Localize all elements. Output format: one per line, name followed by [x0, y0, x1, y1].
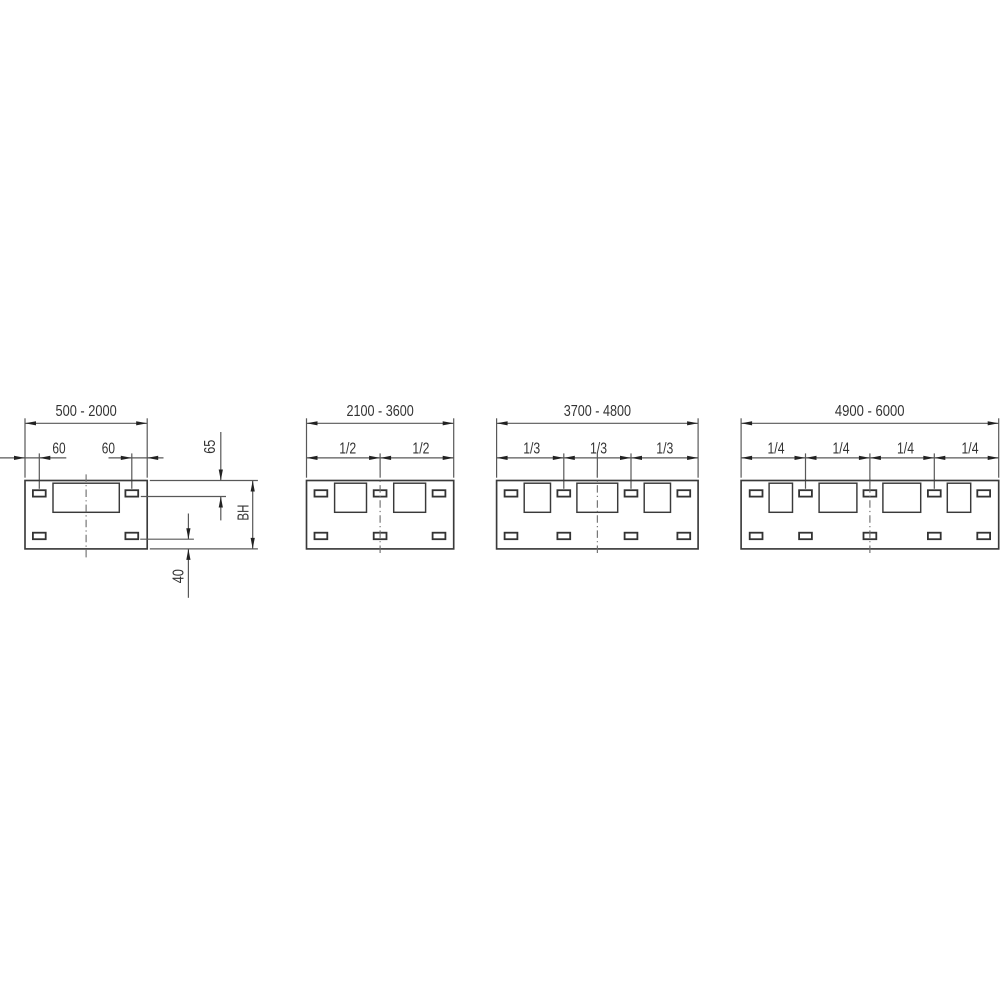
- svg-text:2100 - 3600: 2100 - 3600: [346, 403, 413, 420]
- svg-text:1/3: 1/3: [590, 440, 607, 457]
- svg-text:1/2: 1/2: [412, 440, 429, 457]
- svg-text:1/3: 1/3: [656, 440, 673, 457]
- svg-text:1/2: 1/2: [339, 440, 356, 457]
- svg-text:1/4: 1/4: [833, 440, 850, 457]
- svg-text:60: 60: [52, 440, 65, 457]
- svg-text:4900 - 6000: 4900 - 6000: [835, 403, 905, 420]
- svg-text:1/4: 1/4: [962, 440, 979, 457]
- svg-text:500 - 2000: 500 - 2000: [55, 403, 116, 420]
- svg-text:40: 40: [170, 569, 187, 583]
- svg-text:BH: BH: [235, 505, 252, 521]
- svg-text:60: 60: [102, 440, 115, 457]
- svg-text:65: 65: [202, 440, 219, 454]
- svg-text:1/4: 1/4: [768, 440, 785, 457]
- svg-text:1/4: 1/4: [897, 440, 914, 457]
- svg-text:3700 - 4800: 3700 - 4800: [564, 403, 631, 420]
- svg-text:1/3: 1/3: [523, 440, 540, 457]
